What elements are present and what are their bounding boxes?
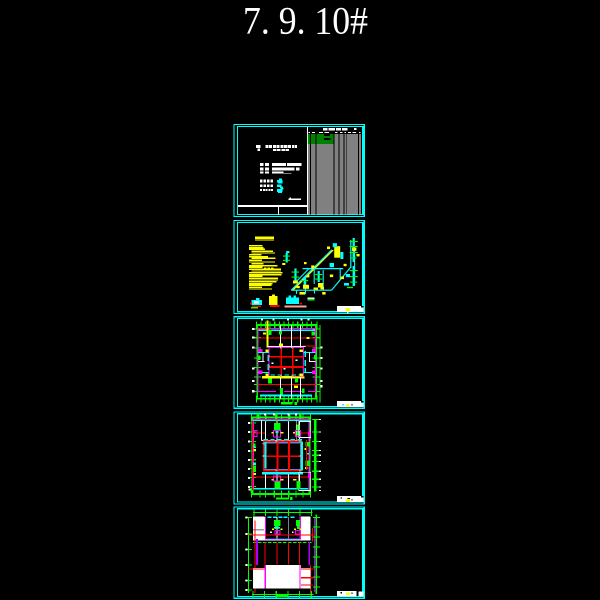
svg-text:7. 9. 10#: 7. 9. 10#	[243, 0, 368, 42]
